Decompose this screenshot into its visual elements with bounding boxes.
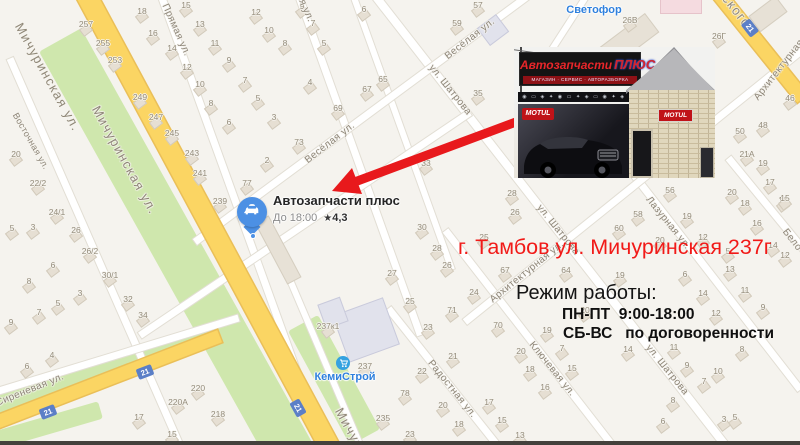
building-number: 14 xyxy=(698,288,707,298)
building-number: 58 xyxy=(633,209,642,219)
building-number: 4 xyxy=(50,350,55,360)
building-number: 13 xyxy=(195,19,204,29)
building-number: 8 xyxy=(283,38,288,48)
building-number: 19 xyxy=(615,270,624,280)
building-number: 5 xyxy=(256,93,261,103)
building-number: 26В xyxy=(622,15,637,25)
building-number: 21 xyxy=(448,351,457,361)
building-number: 25 xyxy=(405,296,414,306)
building-number: 18 xyxy=(137,6,146,16)
sign-plus: ПЛЮС xyxy=(614,57,655,72)
working-hours-weekdays: ПН-ПТ 9:00-18:00 xyxy=(562,306,695,324)
building-number: 28 xyxy=(507,188,516,198)
building-number: 67 xyxy=(500,265,509,275)
shopping-cart-icon[interactable] xyxy=(336,356,350,370)
storefront-photo: АвтозапчастиПЛЮС МАГАЗИН · СЕРВИС · АВТО… xyxy=(514,47,715,178)
map-canvas[interactable]: 25725525324924724524324123924/122/220181… xyxy=(0,0,800,445)
building-number: 9 xyxy=(685,360,690,370)
working-hours-title: Режим работы: xyxy=(516,282,657,305)
car-image xyxy=(518,104,630,178)
building-number: 16 xyxy=(752,218,761,228)
building-number: 18 xyxy=(740,198,749,208)
building-number: 71 xyxy=(447,305,456,315)
building-number: 245 xyxy=(165,128,179,138)
building-number: 21А xyxy=(739,149,754,159)
building-number: 19 xyxy=(682,211,691,221)
building-number: 5 xyxy=(733,412,738,422)
building-number: 77 xyxy=(242,178,251,188)
building-number: 67 xyxy=(362,84,371,94)
building-number: 7 xyxy=(243,75,248,85)
building-number: 46 xyxy=(785,93,794,103)
building-number: 235 xyxy=(376,413,390,423)
building-number: 35 xyxy=(473,88,482,98)
building-number: 78 xyxy=(400,388,409,398)
building-number: 9 xyxy=(761,302,766,312)
building-number: 7 xyxy=(702,376,707,386)
building-number: 20 xyxy=(516,346,525,356)
building-number: 9 xyxy=(227,55,232,65)
building-number: 4 xyxy=(308,77,313,87)
building-number: 69 xyxy=(333,103,342,113)
building-number: 6 xyxy=(25,361,30,371)
building-number: 7 xyxy=(560,343,565,353)
pin-label[interactable]: Автозапчасти плюс До 18:00★4,3 xyxy=(273,193,400,226)
building-number: 60 xyxy=(614,223,623,233)
building-number: 26 xyxy=(442,260,451,270)
building-number: 16 xyxy=(540,382,549,392)
building-number: 8 xyxy=(209,98,214,108)
building-number: 253 xyxy=(108,55,122,65)
building-number: 20 xyxy=(727,187,736,197)
building-number: 249 xyxy=(133,92,147,102)
motul-banner: MOTUL xyxy=(518,104,630,178)
building-number: 32 xyxy=(123,294,132,304)
building-number: 12 xyxy=(182,62,191,72)
building-number: 8 xyxy=(740,344,745,354)
building-number: 11 xyxy=(741,285,750,295)
building-number: 15 xyxy=(567,363,576,373)
building-number: 26 xyxy=(510,207,519,217)
building-number: 237 xyxy=(358,361,372,371)
building-number: 220 xyxy=(191,383,205,393)
working-hours-weekend: СБ-ВС по договоренности xyxy=(563,325,774,343)
building-number: 17 xyxy=(484,397,493,407)
building-number: 3 xyxy=(78,288,83,298)
building-number: 50 xyxy=(735,126,744,136)
building-number: 19 xyxy=(758,158,767,168)
building-number: 5 xyxy=(56,298,61,308)
building-number: 30 xyxy=(417,222,426,232)
building-number: 27 xyxy=(387,268,396,278)
building-number: 6 xyxy=(661,416,666,426)
building-number: 26 xyxy=(71,225,80,235)
pin-circle xyxy=(237,197,267,227)
building-number: 247 xyxy=(149,112,163,122)
building xyxy=(660,0,702,14)
car-icon xyxy=(243,203,261,221)
pin-anchor-dot xyxy=(250,233,256,239)
building-number: 15 xyxy=(780,193,789,203)
building-number: 24 xyxy=(469,287,478,297)
building-number: 218 xyxy=(211,409,225,419)
building-number: 19 xyxy=(542,325,551,335)
building-number: 3 xyxy=(31,222,36,232)
building-number: 9 xyxy=(9,317,14,327)
store-signboard: АвтозапчастиПЛЮС МАГАЗИН · СЕРВИС · АВТО… xyxy=(519,52,641,86)
poi-label[interactable]: КемиСтрой xyxy=(314,371,375,383)
building-number: 15 xyxy=(181,0,190,10)
building-number: 16 xyxy=(148,28,157,38)
sign-title-row: АвтозапчастиПЛЮС xyxy=(520,56,640,74)
building-number: 24/1 xyxy=(49,207,66,217)
building-number: 23 xyxy=(405,429,414,439)
brand-logos-strip: ◉ ▭ ◈ ✦ ◉ ▭ ✦ ◈ ▭ ◉ ✦ ◈ xyxy=(518,92,630,102)
building-number: 5 xyxy=(322,38,327,48)
building-number: 15 xyxy=(497,415,506,425)
house-door xyxy=(631,129,653,178)
building-number: 11 xyxy=(670,342,679,352)
building-number: 12 xyxy=(780,250,789,260)
building-number: 33 xyxy=(421,158,430,168)
motul-wall-sign: MOTUL xyxy=(658,109,693,122)
building-number: 241 xyxy=(193,168,207,178)
building-number: 237к1 xyxy=(317,321,340,331)
pin-hours: До 18:00 xyxy=(273,212,317,224)
building-number: 14 xyxy=(623,344,632,354)
building-number: 48 xyxy=(758,120,767,130)
sign-subtitle: МАГАЗИН · СЕРВИС · АВТОРАЗБОРКА xyxy=(523,76,637,84)
building-number: 14 xyxy=(167,43,176,53)
building-number: 6 xyxy=(362,4,367,14)
sign-title: Автозапчасти xyxy=(520,58,612,72)
building-number: 8 xyxy=(27,276,32,286)
building-number: 56 xyxy=(665,185,674,195)
building-number: 23 xyxy=(423,322,432,332)
building-number: 59 xyxy=(452,18,461,28)
building-number: 20 xyxy=(11,149,20,159)
building-number: 18 xyxy=(525,364,534,374)
star-icon: ★ xyxy=(323,213,332,224)
building-number: 220А xyxy=(168,397,188,407)
building-number: 8 xyxy=(671,395,676,405)
building-number: 11 xyxy=(211,38,220,48)
building-number: 22 xyxy=(417,366,426,376)
building-number: 6 xyxy=(51,260,56,270)
address-overlay-text: г. Тамбов ул. Мичуринская 237г xyxy=(458,235,772,260)
building-number: 70 xyxy=(493,320,502,330)
bottom-dark-strip xyxy=(0,441,800,445)
building-number: 22/2 xyxy=(30,178,47,188)
building-number: 5 xyxy=(10,223,15,233)
building-number: 73 xyxy=(294,137,303,147)
building-number: 15 xyxy=(167,429,176,439)
building-number: 64 xyxy=(561,265,570,275)
building-number: 17 xyxy=(134,412,143,422)
street-label: ул. Шатрова xyxy=(426,63,473,118)
building-number: 12 xyxy=(251,7,260,17)
building-number: 6 xyxy=(683,269,688,279)
building-number: 10 xyxy=(195,79,204,89)
building-number: 12 xyxy=(711,308,720,318)
house-window xyxy=(700,147,714,178)
building-number: 10 xyxy=(264,25,273,35)
building-number: 17 xyxy=(765,177,774,187)
street-road xyxy=(294,0,424,336)
building-number: 13 xyxy=(515,430,524,440)
building-number: 239 xyxy=(213,196,227,206)
building-number: 243 xyxy=(185,148,199,158)
building-number: 20 xyxy=(438,400,447,410)
building-number: 255 xyxy=(96,38,110,48)
building-number: 18 xyxy=(454,419,463,429)
building-number: 2 xyxy=(265,155,270,165)
building-number: 10 xyxy=(713,366,722,376)
pin-title: Автозапчасти плюс xyxy=(273,193,400,208)
building-number: 7 xyxy=(37,307,42,317)
building-number: 28 xyxy=(432,243,441,253)
building-number: 13 xyxy=(725,264,734,274)
building-number: 26Г xyxy=(712,31,726,41)
poi-label[interactable]: Светофор xyxy=(566,4,621,16)
building-number: 3 xyxy=(272,112,277,122)
pin-rating: 4,3 xyxy=(332,212,347,224)
building-number: 257 xyxy=(79,19,93,29)
building-number: 26/2 xyxy=(82,246,99,256)
building-number: 57 xyxy=(473,0,482,10)
building-number: 3 xyxy=(722,414,727,424)
building-number: 34 xyxy=(138,310,147,320)
building-number: 6 xyxy=(227,117,232,127)
building-number: 65 xyxy=(378,74,387,84)
building-number: 30/1 xyxy=(102,270,119,280)
